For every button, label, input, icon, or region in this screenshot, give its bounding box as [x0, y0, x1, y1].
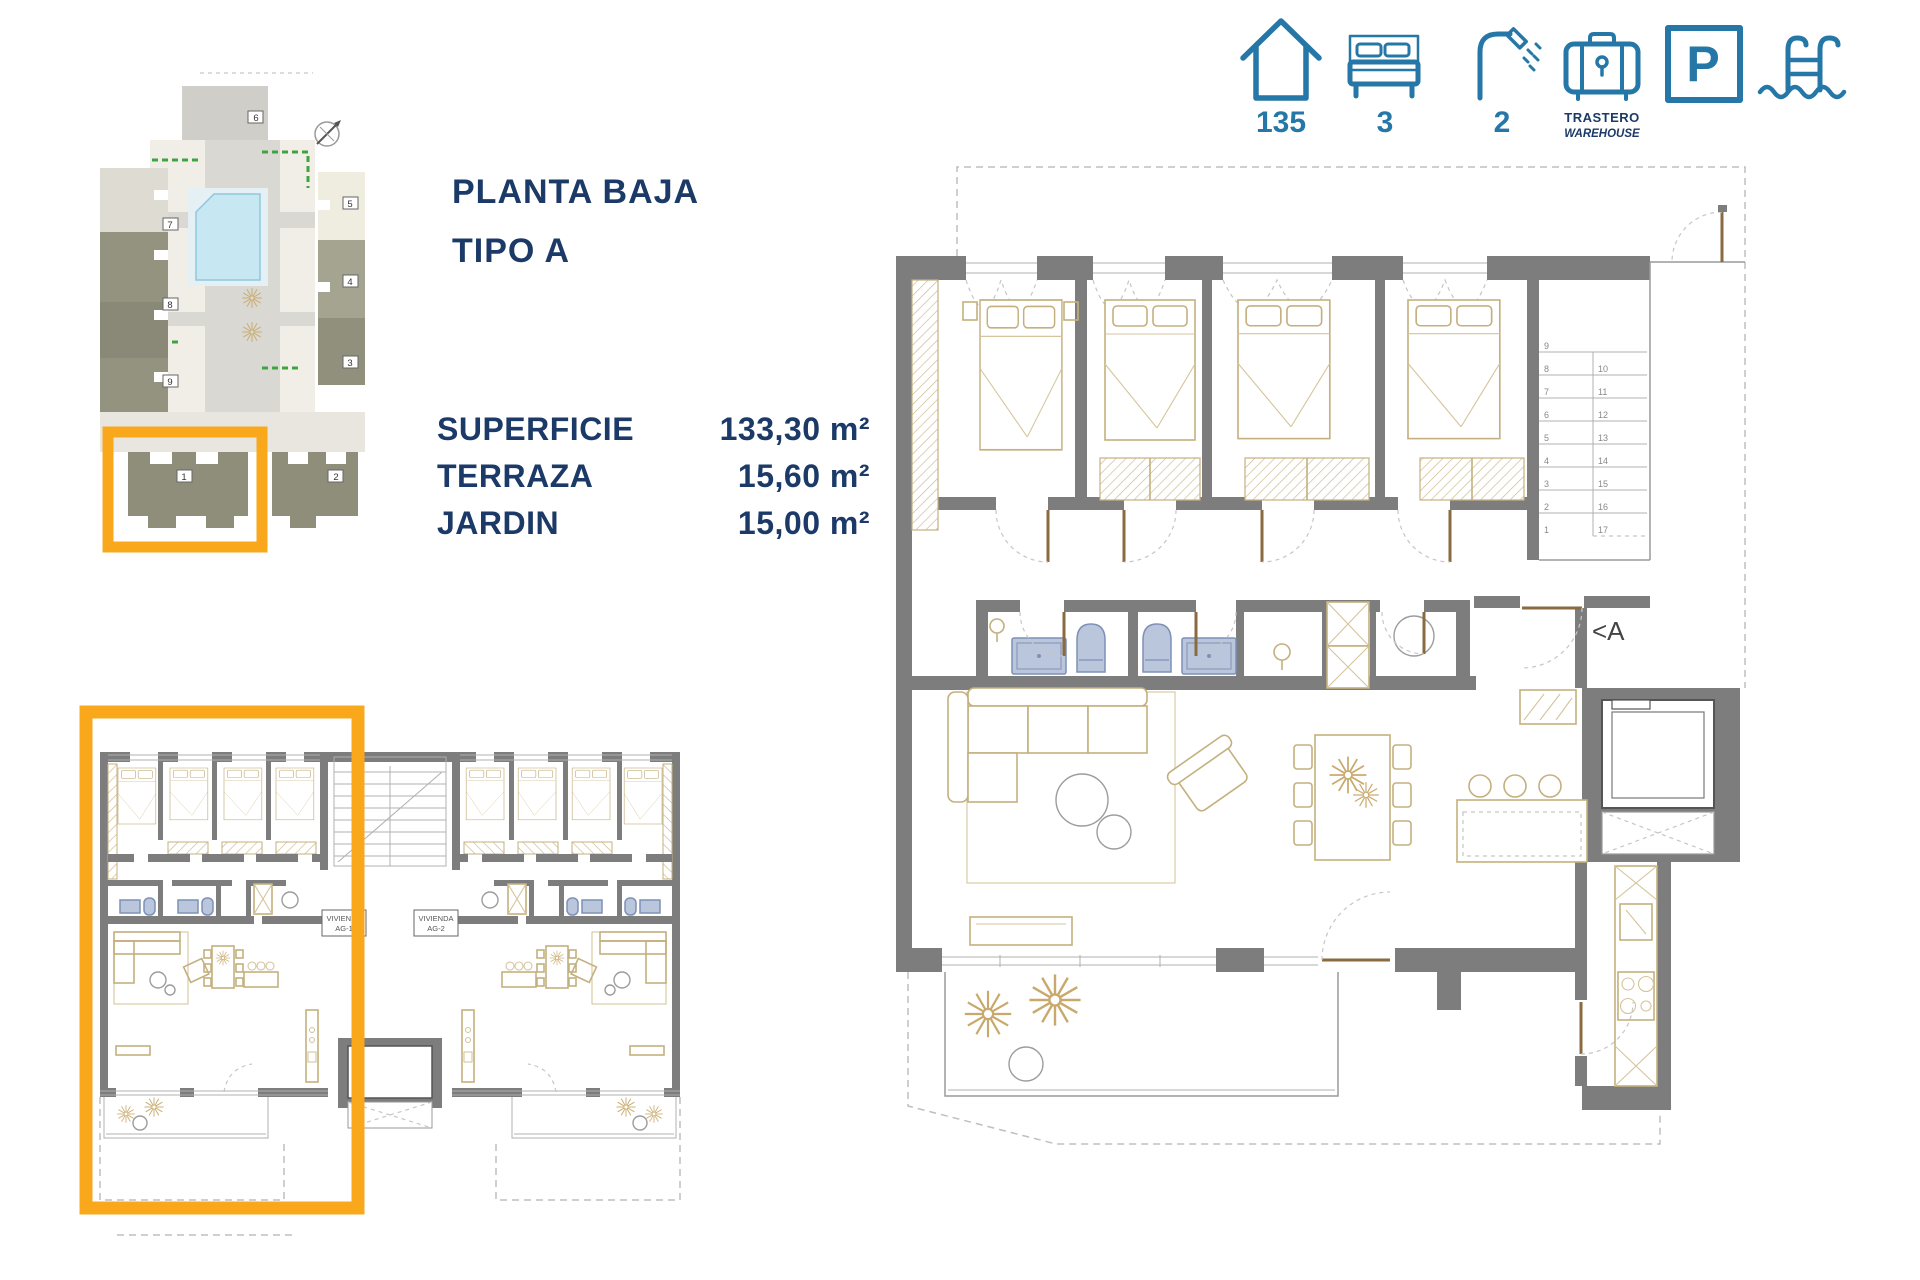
svg-text:13: 13 — [1598, 433, 1608, 443]
svg-text:17: 17 — [1598, 525, 1608, 535]
terrace — [945, 972, 1338, 1096]
kitchen — [1581, 866, 1657, 1086]
area-row-value: 133,30 m² — [720, 411, 870, 447]
lift-shaft — [1582, 688, 1740, 862]
coffee-table — [1056, 774, 1108, 826]
plan-artwork: 6 5 7 4 8 3 9 1 2 PLANTA BAJA TIPO A SUP… — [0, 0, 1920, 1280]
bedrooms — [912, 280, 1524, 530]
site-tag-5: 5 — [347, 199, 352, 210]
area-m2-value: 135 — [1256, 106, 1306, 139]
page-title-line2: TIPO A — [452, 232, 570, 270]
kitchen-island — [1457, 775, 1587, 862]
unit2-label-line2: AG-2 — [427, 924, 445, 933]
svg-text:16: 16 — [1598, 502, 1608, 512]
mini-unit-labels: VIVIENDA AG-1 VIVIENDA AG-2 — [322, 910, 458, 936]
parking-icon: P — [1668, 28, 1740, 100]
area-row-label: JARDIN — [437, 505, 559, 541]
pool-icon — [1760, 38, 1844, 97]
title-block: PLANTA BAJA TIPO A — [452, 173, 699, 270]
entry-zone: <A — [1520, 205, 1727, 724]
stair-step-numbers: 9 8 7 6 5 4 3 2 1 10 11 12 13 14 15 16 1… — [1544, 341, 1608, 535]
mini-stair-core — [328, 752, 452, 1128]
area-row-label: SUPERFICIE — [437, 411, 634, 447]
site-tag-1: 1 — [181, 472, 186, 483]
compass-icon — [315, 120, 341, 146]
stairwell: 9 8 7 6 5 4 3 2 1 10 11 12 13 14 15 16 1… — [1539, 262, 1745, 560]
bed-icon — [1350, 36, 1418, 96]
svg-text:4: 4 — [1544, 456, 1549, 466]
warehouse-icon — [1566, 34, 1638, 99]
site-tag-4: 4 — [347, 277, 352, 288]
shower-icon — [1480, 29, 1540, 98]
dining-table — [1294, 735, 1411, 860]
svg-text:15: 15 — [1598, 479, 1608, 489]
wardrobe-strip — [912, 280, 938, 530]
bathrooms-value: 2 — [1494, 106, 1511, 139]
page-title-line1: PLANTA BAJA — [452, 173, 699, 211]
storage-label: TRASTERO — [1564, 110, 1640, 125]
floor-plan-sheet: 6 5 7 4 8 3 9 1 2 PLANTA BAJA TIPO A SUP… — [0, 0, 1920, 1280]
svg-text:8: 8 — [1544, 364, 1549, 374]
area-table: SUPERFICIE 133,30 m² TERRAZA 15,60 m² JA… — [437, 411, 870, 541]
section-marker: <A — [1592, 616, 1625, 646]
area-row-value: 15,00 m² — [738, 505, 870, 541]
svg-text:10: 10 — [1598, 364, 1608, 374]
area-row-label: TERRAZA — [437, 458, 593, 494]
ground-floor-plan: VIVIENDA AG-1 VIVIENDA AG-2 — [86, 712, 680, 1235]
armchair — [1165, 733, 1255, 817]
svg-text:1: 1 — [1544, 525, 1549, 535]
bedroom-doors — [996, 510, 1450, 562]
svg-text:6: 6 — [1544, 410, 1549, 420]
site-tag-3: 3 — [347, 358, 352, 369]
svg-text:5: 5 — [1544, 433, 1549, 443]
area-row-value: 15,60 m² — [738, 458, 870, 494]
site-tag-9: 9 — [167, 377, 172, 388]
unit1-label-line2: AG-1 — [335, 924, 353, 933]
svg-text:3: 3 — [1544, 479, 1549, 489]
svg-text:12: 12 — [1598, 410, 1608, 420]
tv-sideboard — [970, 917, 1072, 945]
house-icon — [1243, 21, 1319, 98]
parking-letter: P — [1686, 36, 1719, 92]
sofa — [968, 688, 1147, 706]
storage-label-en: WAREHOUSE — [1564, 128, 1640, 140]
site-tag-8: 8 — [167, 300, 172, 311]
svg-text:2: 2 — [1544, 502, 1549, 512]
svg-text:14: 14 — [1598, 456, 1608, 466]
site-building-1 — [128, 452, 248, 516]
summary-icons: 135 3 2 — [1243, 21, 1844, 140]
pool-shape — [196, 194, 260, 280]
site-tag-7: 7 — [167, 220, 172, 231]
svg-text:7: 7 — [1544, 387, 1549, 397]
bathrooms — [990, 602, 1434, 688]
svg-text:11: 11 — [1598, 387, 1607, 397]
unit2-label-line1: VIVIENDA — [418, 914, 453, 923]
site-tag-6: 6 — [253, 113, 258, 124]
living-room — [948, 688, 1587, 960]
site-tag-2: 2 — [333, 472, 338, 483]
svg-text:9: 9 — [1544, 341, 1549, 351]
site-plan: 6 5 7 4 8 3 9 1 2 — [100, 73, 365, 547]
main-apartment-plan: 9 8 7 6 5 4 3 2 1 10 11 12 13 14 15 16 1… — [896, 167, 1745, 1144]
bedrooms-value: 3 — [1377, 106, 1394, 139]
garden-boundary — [908, 972, 1660, 1144]
terrace-table — [1009, 1047, 1043, 1081]
